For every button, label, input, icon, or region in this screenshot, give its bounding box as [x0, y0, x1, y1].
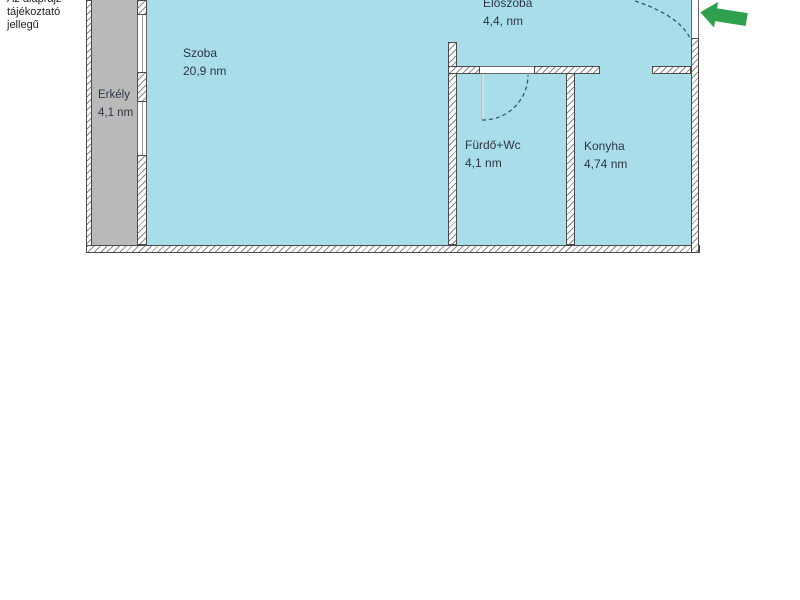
room-name: Fürdő+Wc: [465, 136, 521, 154]
floor-plan: Szoba 20,9 nm Erkély 4,1 nm Előszoba 4,4…: [0, 0, 800, 600]
room-name: Szoba: [183, 44, 226, 62]
balcony-floor: [92, 0, 137, 245]
apartment-floor: [147, 0, 691, 245]
room-name: Előszoba: [483, 0, 532, 12]
room-name: Konyha: [584, 137, 627, 155]
label-eloszoba: Előszoba 4,4, nm: [483, 0, 532, 30]
bathroom-door-leaf: [481, 74, 484, 120]
wall-room-left-a: [137, 0, 147, 15]
entrance-door-opening: [691, 0, 699, 38]
label-furdo: Fürdő+Wc 4,1 nm: [465, 136, 521, 172]
room-area: 4,1 nm: [98, 104, 133, 122]
room-name: Erkély: [98, 86, 133, 104]
disclaimer-note: Az alaprajz tájékoztató jellegű: [7, 0, 61, 32]
entrance-arrow-icon: [698, 0, 748, 32]
room-area: 4,1 nm: [465, 154, 521, 172]
wall-balcony-left: [86, 0, 92, 253]
label-konyha: Konyha 4,74 nm: [584, 137, 627, 173]
balcony-window-2: [137, 102, 147, 155]
bathroom-door-opening: [480, 66, 534, 74]
room-area: 4,4, nm: [483, 12, 532, 30]
label-szoba: Szoba 20,9 nm: [183, 44, 226, 80]
label-erkely: Erkély 4,1 nm: [98, 86, 133, 122]
wall-bottom: [86, 245, 700, 253]
room-area: 4,74 nm: [584, 155, 627, 173]
room-area: 20,9 nm: [183, 62, 226, 80]
wall-bathroom-kitchen-divider: [566, 73, 575, 245]
wall-right: [691, 38, 699, 253]
wall-hall-b: [534, 66, 600, 74]
disclaimer-line: jellegű: [7, 19, 61, 32]
disclaimer-line: tájékoztató: [7, 6, 61, 19]
wall-room-left-c: [137, 155, 147, 245]
wall-hall-c: [652, 66, 691, 74]
balcony-window-1: [137, 15, 147, 72]
wall-hall-a: [448, 66, 480, 74]
wall-room-left-b: [137, 72, 147, 102]
